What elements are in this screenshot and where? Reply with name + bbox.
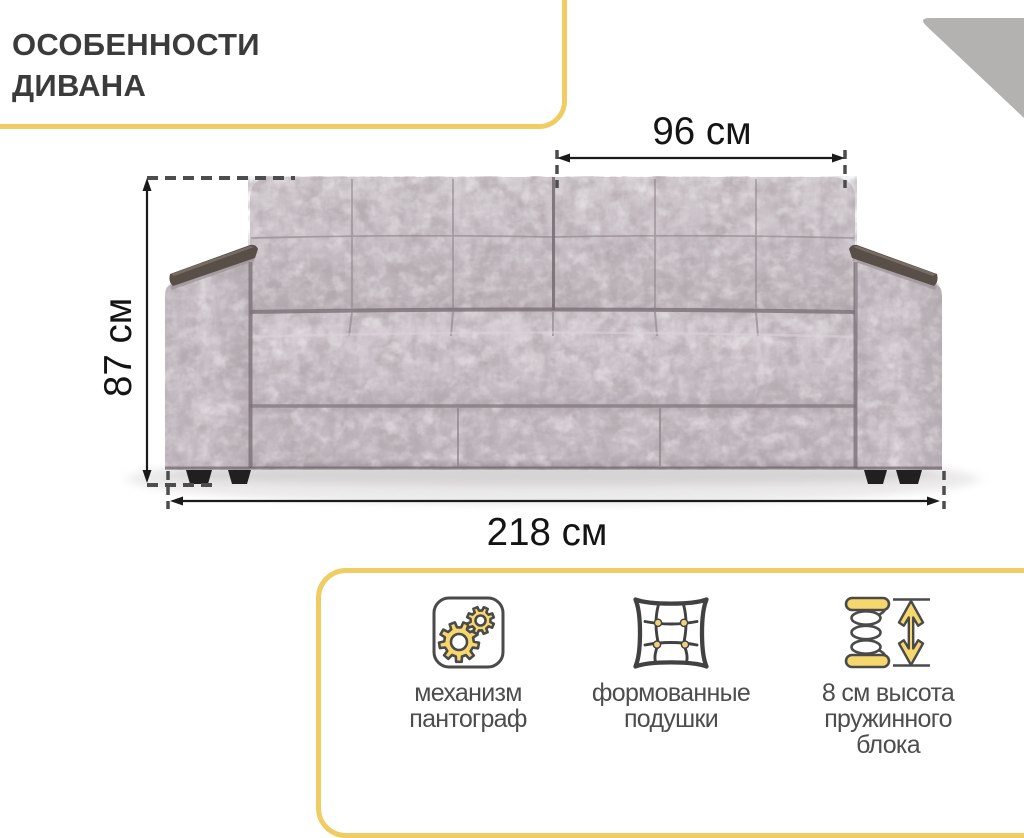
svg-text:блока: блока [856,731,921,759]
svg-text:пружинного: пружинного [824,705,952,733]
svg-text:формованные: формованные [592,679,750,707]
svg-text:механизм: механизм [414,679,522,707]
svg-text:подушки: подушки [624,705,718,733]
svg-text:пантограф: пантограф [409,705,527,733]
svg-text:8 см высота: 8 см высота [822,679,955,707]
